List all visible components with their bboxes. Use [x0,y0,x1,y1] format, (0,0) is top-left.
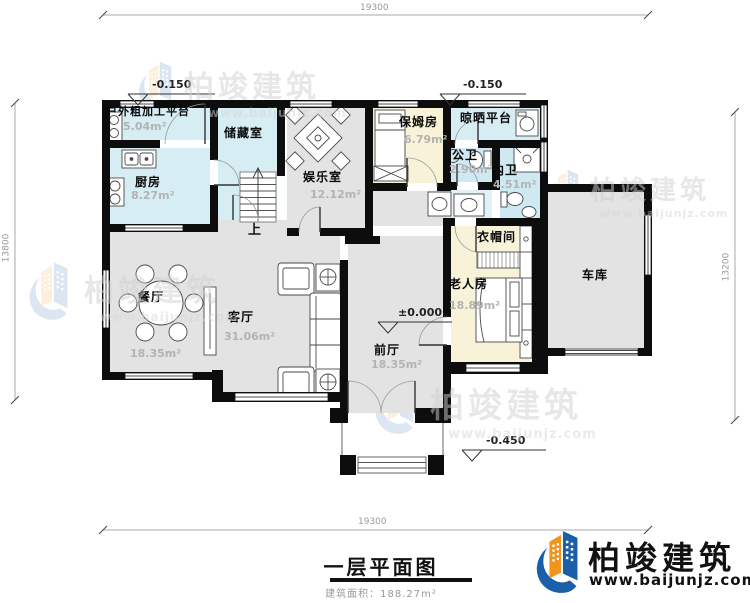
brand-url: www.baijunjz.com [589,571,750,589]
vanity-sinks [428,192,484,216]
level-porch: -0.450 [486,434,525,447]
room-label-living: 客厅 [228,308,254,325]
room-area-entertainment: 12.12m² [310,188,361,201]
level-entry: ±0.000 [398,306,442,319]
room-label-front-hall: 前厅 [374,341,400,358]
room-label-nanny: 保姆房 [399,113,438,130]
room-label-drying-platform: 晾晒平台 [460,109,512,126]
room-label-outdoor-platform: 户外粗加工平台 [106,103,190,119]
floor-plan-drawing: 19300 19300 13800 13200 -0.150 -0.150 ±0… [0,0,750,603]
room-label-inner-bath: 内卫 [492,161,518,178]
dimension-bottom: 19300 [358,517,387,527]
room-label-cloakroom: 衣帽间 [477,228,516,245]
room-area-front-hall: 18.35m² [371,358,422,371]
kitchen-sink-icon [122,150,156,168]
room-label-elder-room: 老人房 [449,275,488,292]
room-label-garage: 车库 [582,266,608,283]
floor-plan-canvas [0,0,750,603]
room-area-elder-room: 18.89m² [449,299,500,312]
room-area-public-bath: 2.90m² [449,163,492,176]
room-area-outdoor-platform: 5.04m² [123,120,166,133]
room-label-kitchen: 厨房 [135,173,161,190]
garage-door [565,349,638,355]
room-label-entertainment: 娱乐室 [303,168,342,185]
room-area-dining: 18.35m² [130,347,181,360]
brand-logo-icon [537,531,578,593]
dimension-right: 13200 [721,253,731,282]
room-area-nanny: 6.79m² [404,133,447,146]
room-label-public-bath: 公卫 [452,146,478,163]
washing-machine-icon [516,110,538,136]
dimension-left: 13800 [1,234,11,263]
tv-cabinet [204,287,216,355]
room-area-inner-bath: 4.51m² [493,178,536,191]
room-label-dining: 餐厅 [138,288,164,305]
dimension-top: 19300 [360,3,389,13]
stairs [240,168,276,222]
stairs-up-label: 上 [248,219,261,238]
room-area-living: 31.06m² [224,330,275,343]
room-area-kitchen: 8.27m² [131,189,174,202]
building-area-note: 建筑面积：188.27m² [300,585,462,600]
game-table [286,106,350,170]
level-top-left: -0.150 [152,78,191,91]
level-top-right: -0.150 [463,78,502,91]
title-underline [330,578,472,582]
room-label-storage: 储藏室 [224,124,263,141]
drawing-title: 一层平面图 [290,551,472,580]
